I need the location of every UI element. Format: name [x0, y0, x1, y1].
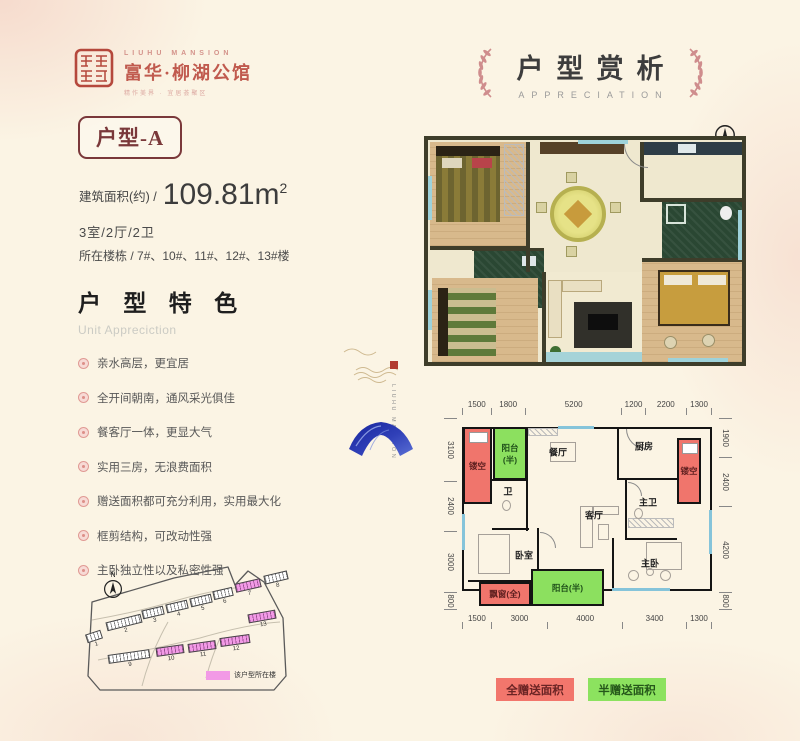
flower-bullet-icon: [78, 427, 89, 438]
unit-type-badge: 户型-A: [78, 116, 182, 159]
dimension-segment: 1800: [491, 408, 525, 415]
gift-legend: 全赠送面积 半赠送面积: [496, 678, 666, 701]
brand-seal-icon: [74, 48, 114, 88]
building-number: 9: [128, 662, 132, 668]
dimension-label: 1200: [622, 400, 644, 409]
dimension-label: 2400: [721, 473, 730, 491]
feature-item: 全开间朝南，通风采光俱佳: [78, 390, 328, 406]
dimension-label: 3400: [623, 614, 686, 623]
dimension-label: 3100: [446, 441, 455, 459]
watermark-seal-icon: [390, 361, 398, 369]
siteplan-legend-swatch: [206, 671, 230, 680]
dimension-segment: 1300: [686, 622, 712, 629]
area-line: 建筑面积(约) / 109.81m2: [79, 180, 287, 210]
laurel-left-icon: [470, 46, 496, 100]
floorplan-2d: 150018005200120022001300 310024003000800…: [436, 402, 752, 652]
feature-text: 全开间朝南，通风采光俱佳: [97, 390, 235, 406]
page-title: 户型赏析: [517, 47, 677, 86]
wave-ornament-icon: [336, 344, 422, 392]
area-value: 109.81m2: [163, 180, 288, 210]
building-number: 11: [200, 652, 207, 659]
dimension-segment: 1200: [621, 408, 644, 415]
plan3d-wardrobe: [504, 144, 524, 216]
dimension-segment: 1500: [462, 408, 491, 415]
dimension-label: 1500: [463, 400, 491, 409]
plan3d-chair: [566, 246, 577, 257]
dimension-label: 3000: [492, 614, 547, 623]
room-block-balcony-top: 阳台(半): [493, 427, 527, 480]
building-number: 10: [167, 655, 174, 662]
brand-watermark: LIUHU MANSION: [336, 344, 432, 474]
plan3d-chair: [536, 202, 547, 213]
dimension-label: 800: [446, 594, 455, 607]
dimension-label: 1500: [463, 614, 491, 623]
dimensions-right: 190024004200800: [719, 418, 732, 610]
room-label-dining: 餐厅: [549, 446, 567, 459]
room-label: 阳台(半): [552, 582, 583, 594]
dimension-label: 1900: [721, 429, 730, 447]
plan3d-bath-right: [662, 200, 742, 258]
feature-item: 餐客厅一体，更显大气: [78, 424, 328, 440]
siteplan: N 12345678910111213 该户型所在楼: [78, 558, 297, 702]
features-list: 亲水高层，更宜居全开间朝南，通风采光俱佳餐客厅一体，更显大气实用三房，无浪费面积…: [78, 355, 328, 578]
dimension-segment: 2400: [444, 481, 457, 530]
room-label-bath: 卫: [503, 485, 512, 498]
feature-text: 亲水高层，更宜居: [97, 355, 189, 371]
room-label-living: 客厅: [585, 509, 603, 522]
room-label: 阳台(半): [495, 442, 525, 466]
room-block-hollow-left: 镂空: [463, 427, 492, 504]
dimension-label: 4200: [721, 541, 730, 559]
room-layout: 3室/2厅/2卫: [79, 222, 155, 241]
plan3d-chair: [664, 336, 677, 349]
dimension-segment: 800: [719, 592, 732, 610]
dimension-label: 1300: [687, 614, 711, 623]
dimension-label: 1300: [687, 400, 711, 409]
floorplan-2d-drawing: 镂空阳台(半)餐厅厨房镂空主卫卫卧室客厅主卧飘窗(全)阳台(半): [462, 418, 712, 610]
siteplan-legend: 该户型所在楼: [206, 670, 276, 680]
plan3d-bed-bottomleft: [438, 288, 496, 356]
plan3d-balcony: [546, 352, 642, 362]
building-number: 13: [260, 621, 268, 628]
building-number: 12: [232, 645, 239, 652]
room-label-master-bath: 主卫: [639, 496, 657, 509]
room-block-hollow-right: 镂空: [677, 438, 701, 504]
dimension-segment: 3000: [444, 531, 457, 592]
legend-full-gift: 全赠送面积: [496, 678, 574, 701]
feature-item: 赠送面积都可充分利用，实用最大化: [78, 493, 328, 509]
siteplan-compass-icon: N: [102, 572, 124, 604]
room-label: 镂空: [680, 465, 697, 477]
plan3d-dining-table: [550, 186, 606, 242]
feature-item: 亲水高层，更宜居: [78, 355, 328, 371]
feature-item: 框剪结构，可改动性强: [78, 528, 328, 544]
dimension-label: 800: [721, 594, 730, 607]
dimension-segment: 800: [444, 592, 457, 610]
feature-text: 框剪结构，可改动性强: [97, 528, 212, 544]
dimension-label: 4000: [548, 614, 622, 623]
brand-name-cn: 富华·柳湖公馆: [124, 59, 252, 85]
room-label-bedroom: 卧室: [515, 549, 533, 562]
dimension-segment: 5200: [525, 408, 622, 415]
plan3d-chair: [610, 202, 621, 213]
features-title: 户 型 特 色: [78, 284, 328, 318]
features-subtitle: Unit Appreciction: [78, 323, 328, 337]
plan3d-sink: [678, 144, 696, 153]
floors-label: 所在楼栋 /: [79, 249, 134, 263]
feature-text: 实用三房，无浪费面积: [97, 459, 212, 475]
plan3d-living-room: [546, 272, 642, 362]
dimension-label: 1800: [492, 400, 525, 409]
plan3d-chair: [566, 172, 577, 183]
page-title-en: APPRECIATION: [511, 90, 677, 100]
brand-logo: LIUHU MANSION 富华·柳湖公馆 精作美界 · 宜居荟聚区: [74, 48, 252, 97]
feature-text: 赠送面积都可充分利用，实用最大化: [97, 493, 281, 509]
dimension-segment: 4000: [547, 622, 622, 629]
flower-bullet-icon: [78, 530, 89, 541]
north-label: N: [102, 572, 124, 579]
dimension-segment: 1900: [719, 418, 732, 457]
plan3d-bed-master: [658, 270, 730, 326]
dimension-segment: 1300: [686, 408, 712, 415]
area-label: 建筑面积(约) /: [79, 186, 157, 210]
dimension-segment: 4200: [719, 506, 732, 591]
plan3d-bed-topleft: [436, 146, 500, 222]
floors-value: 7#、10#、11#、12#、13#楼: [137, 249, 290, 263]
dimension-segment: 2400: [719, 457, 732, 506]
feature-text: 餐客厅一体，更显大气: [97, 424, 212, 440]
dimension-segment: 3400: [622, 622, 686, 629]
floorplan-3d-render: [424, 136, 746, 366]
dimension-segment: 3000: [491, 622, 547, 629]
siteplan-legend-label: 该户型所在楼: [234, 670, 276, 680]
dimension-label: 5200: [526, 400, 622, 409]
flower-bullet-icon: [78, 461, 89, 472]
dimensions-top: 150018005200120022001300: [462, 402, 712, 415]
dimension-label: 2400: [446, 498, 455, 516]
laurel-right-icon: [685, 46, 711, 100]
brand-tagline: 精作美界 · 宜居荟聚区: [124, 88, 252, 97]
dimensions-left: 310024003000800: [444, 418, 457, 610]
dimensions-bottom: 15003000400034001300: [462, 616, 712, 629]
flower-bullet-icon: [78, 392, 89, 403]
brand-name-en: LIUHU MANSION: [124, 50, 252, 57]
dimension-label: 3000: [446, 553, 455, 571]
dimension-segment: 3100: [444, 418, 457, 481]
legend-half-gift: 半赠送面积: [588, 678, 666, 701]
floors-line: 所在楼栋 / 7#、10#、11#、12#、13#楼: [79, 247, 290, 264]
room-block-bay-window: 飘窗(全): [479, 582, 531, 606]
poster-page: LIUHU MANSION 富华·柳湖公馆 精作美界 · 宜居荟聚区 户型赏析 …: [0, 0, 800, 741]
dimension-segment: 2200: [645, 408, 687, 415]
room-block-balcony-bottom: 阳台(半): [531, 569, 604, 606]
room-label-master-bedroom: 主卧: [641, 557, 659, 570]
plan3d-chair: [702, 334, 715, 347]
features-section: 户 型 特 色 Unit Appreciction 亲水高层，更宜居全开间朝南，…: [78, 284, 328, 597]
flower-bullet-icon: [78, 496, 89, 507]
room-label-kitchen: 厨房: [635, 440, 653, 453]
dimension-segment: 1500: [462, 622, 491, 629]
fan-ornament-icon: [344, 416, 418, 460]
dimension-label: 2200: [646, 400, 687, 409]
room-label: 飘窗(全): [489, 588, 520, 600]
feature-item: 实用三房，无浪费面积: [78, 459, 328, 475]
page-title-block: 户型赏析 APPRECIATION: [440, 46, 740, 100]
room-label: 镂空: [469, 460, 486, 472]
flower-bullet-icon: [78, 358, 89, 369]
